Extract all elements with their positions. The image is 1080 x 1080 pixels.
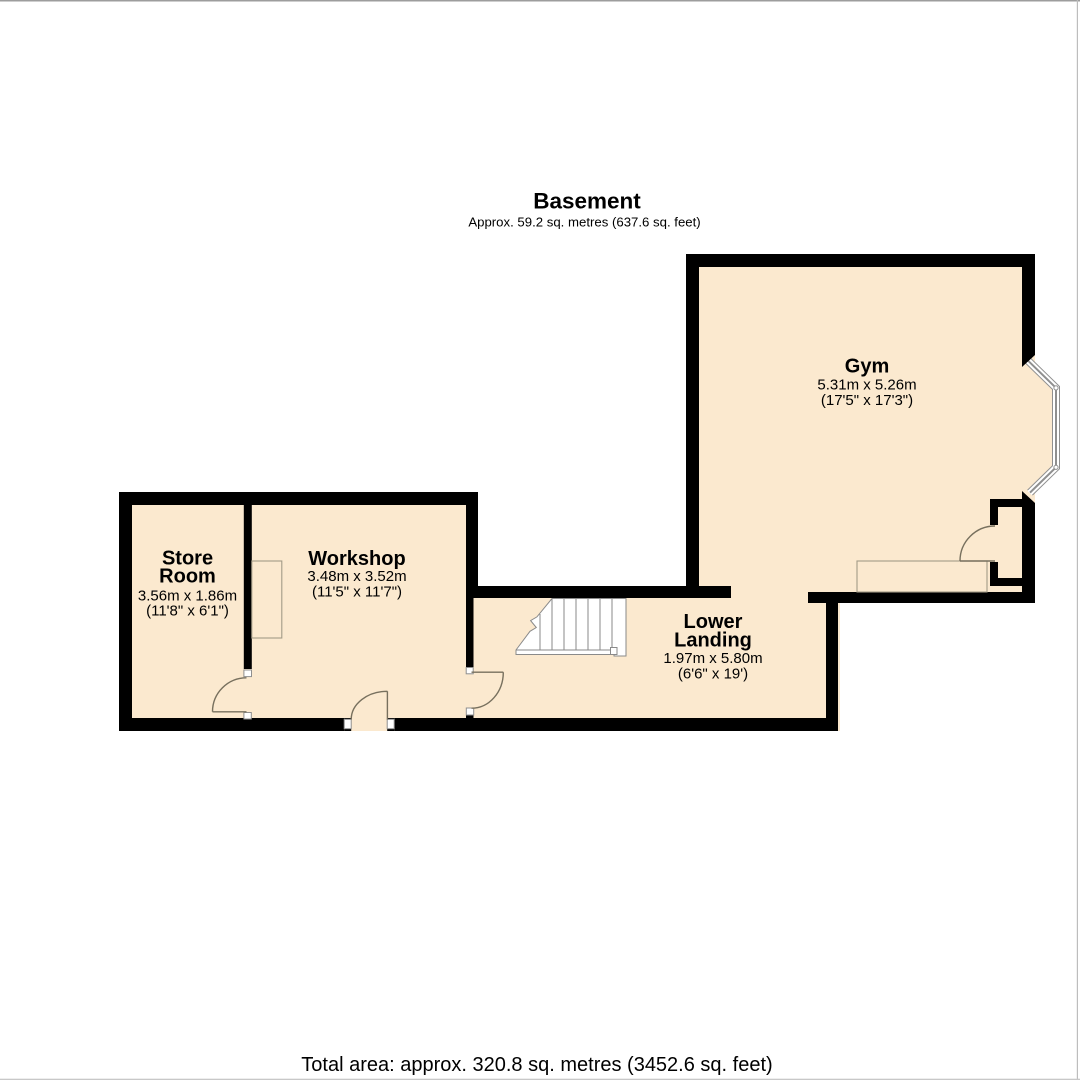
svg-text:Total area: approx. 320.8 sq.: Total area: approx. 320.8 sq. metres (34… — [301, 1054, 772, 1076]
svg-text:(11'5" x 11'7"): (11'5" x 11'7") — [312, 584, 402, 601]
svg-text:Workshop: Workshop — [308, 548, 405, 570]
svg-text:Gym: Gym — [845, 356, 889, 378]
svg-text:Approx. 59.2 sq. metres (637.6: Approx. 59.2 sq. metres (637.6 sq. feet) — [468, 215, 700, 230]
svg-text:(11'8" x 6'1"): (11'8" x 6'1") — [146, 603, 229, 620]
svg-text:(17'5" x 17'3"): (17'5" x 17'3") — [821, 392, 913, 409]
svg-text:Basement: Basement — [533, 189, 641, 214]
svg-text:Room: Room — [159, 566, 216, 588]
svg-text:(6'6" x 19'): (6'6" x 19') — [678, 666, 748, 683]
svg-text:3.48m x 3.52m: 3.48m x 3.52m — [307, 568, 406, 585]
svg-text:Landing: Landing — [674, 630, 752, 652]
svg-text:1.97m x 5.80m: 1.97m x 5.80m — [663, 650, 762, 667]
